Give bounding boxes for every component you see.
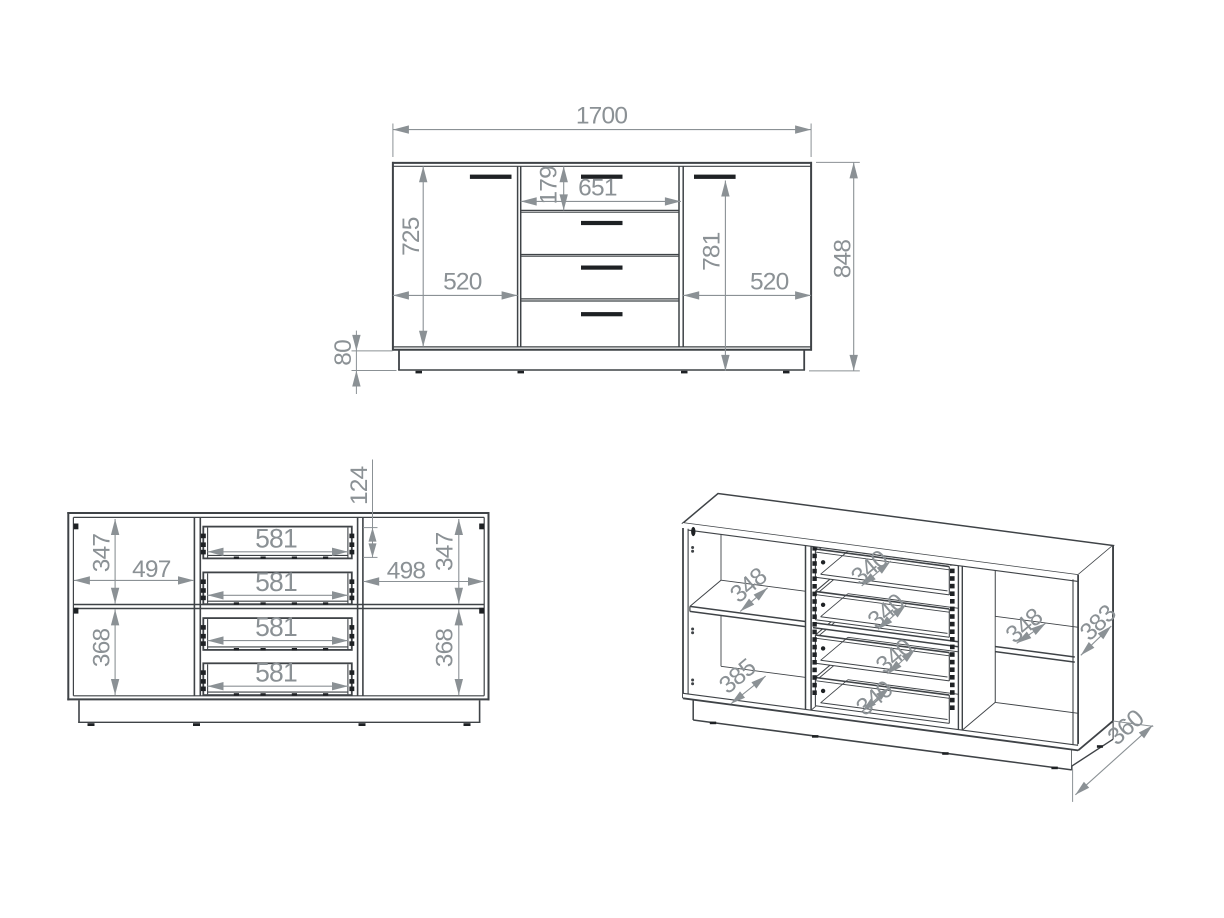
svg-text:347: 347 <box>88 534 115 573</box>
svg-text:124: 124 <box>346 466 373 505</box>
svg-text:520: 520 <box>750 268 789 295</box>
svg-text:581: 581 <box>255 523 297 553</box>
svg-text:781: 781 <box>698 232 725 271</box>
svg-text:725: 725 <box>398 217 425 256</box>
svg-text:497: 497 <box>132 556 171 583</box>
svg-text:347: 347 <box>431 532 458 571</box>
svg-text:581: 581 <box>255 612 297 642</box>
svg-text:498: 498 <box>387 557 426 584</box>
svg-text:651: 651 <box>578 174 617 201</box>
svg-text:520: 520 <box>443 268 482 295</box>
svg-text:368: 368 <box>431 629 458 668</box>
svg-text:848: 848 <box>829 240 856 279</box>
svg-text:80: 80 <box>330 340 357 366</box>
svg-text:368: 368 <box>88 628 115 667</box>
svg-text:581: 581 <box>255 567 297 597</box>
svg-text:1700: 1700 <box>576 103 627 130</box>
svg-text:179: 179 <box>536 166 563 205</box>
svg-text:581: 581 <box>255 658 297 688</box>
